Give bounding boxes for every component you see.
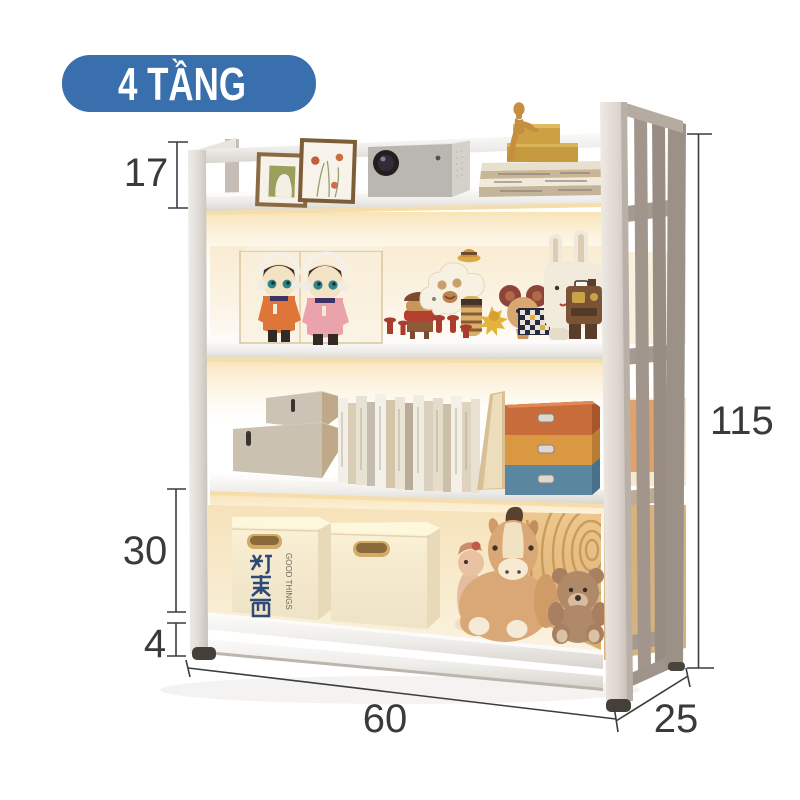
svg-text:25: 25 [654,697,699,741]
svg-text:4: 4 [144,622,166,666]
svg-text:115: 115 [710,399,774,443]
svg-text:30: 30 [123,529,168,573]
svg-text:60: 60 [363,697,408,741]
svg-text:GOOD THINGS: GOOD THINGS [284,553,293,610]
svg-text:17: 17 [124,151,169,195]
svg-text:4 TẦNG: 4 TẦNG [118,58,246,110]
